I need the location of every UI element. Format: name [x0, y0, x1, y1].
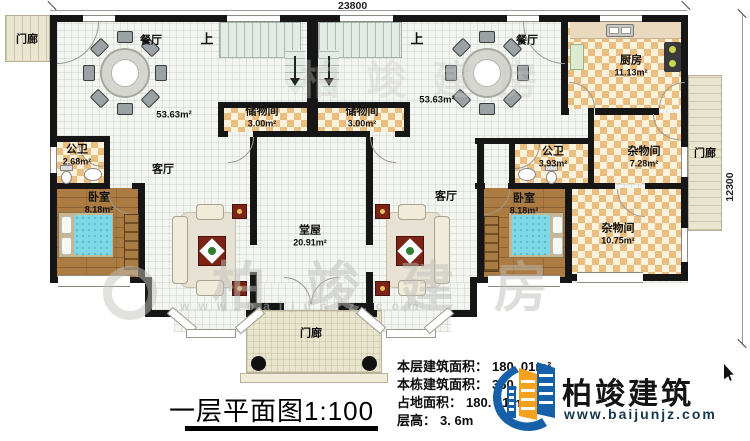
stove	[664, 42, 681, 72]
room-label-living-right: 客厅	[435, 191, 457, 204]
side-table-dot	[237, 286, 242, 291]
round-table-top	[111, 59, 139, 87]
room-label-porch-right: 门廊	[694, 148, 716, 161]
armchair	[398, 204, 426, 220]
toilet-left-bowl	[61, 171, 72, 184]
wall-center	[307, 15, 318, 137]
room-label-bath-left: 公卫 2.68m²	[63, 144, 92, 167]
wall	[218, 131, 228, 137]
sink-left	[84, 168, 102, 181]
room-label-utility-large: 杂物间 10.75m²	[601, 223, 635, 246]
room-name: 堂屋	[293, 225, 327, 238]
bay-window-left	[186, 329, 236, 338]
pillow	[61, 237, 72, 255]
fridge	[570, 44, 584, 70]
room-name: 卧室	[85, 192, 114, 205]
room-label-bedroom-right: 卧室 8.18m²	[510, 193, 539, 216]
chair	[503, 89, 523, 109]
room-area: 20.91m²	[293, 237, 327, 247]
room-label-hall: 堂屋 20.91m²	[293, 225, 327, 248]
wall	[50, 183, 106, 189]
chair	[479, 31, 495, 43]
room-label-storage-right: 储物间 3.00m²	[346, 106, 379, 129]
sheet-title-text: 一层平面图	[169, 396, 304, 426]
dim-top-value: 23800	[338, 0, 367, 12]
pillow	[61, 216, 72, 234]
chair	[155, 65, 167, 81]
wall	[318, 131, 370, 137]
chair	[479, 103, 495, 115]
porch-door-panel	[681, 147, 688, 177]
brand-logo-icon	[487, 356, 563, 440]
room-name: 储物间	[246, 106, 279, 119]
room-label-dining-right: 餐厅	[516, 35, 538, 48]
room-name: 公卫	[63, 144, 92, 157]
porch-front-step	[240, 373, 388, 383]
armchair	[398, 280, 426, 296]
wall	[588, 108, 594, 186]
wall	[645, 183, 688, 189]
window	[600, 15, 642, 22]
wall	[560, 277, 572, 283]
room-label-dining-left: 餐厅	[140, 35, 162, 48]
room-name: 厨房	[614, 55, 647, 68]
room-label-kitchen: 厨房 11.13m²	[614, 55, 647, 78]
room-label-bath-right: 公卫 3.93m²	[539, 146, 568, 169]
area-dining-right: 53.63m²	[419, 96, 454, 107]
stat-label: 本栋建筑面积：	[397, 377, 488, 392]
chair	[117, 31, 133, 43]
window	[577, 272, 643, 283]
room-area: 8.18m²	[510, 205, 539, 215]
title-underline	[185, 426, 378, 431]
wall	[393, 15, 507, 22]
dim-tick	[47, 1, 56, 10]
wall	[565, 183, 572, 277]
wall	[50, 173, 57, 283]
room-area: 2.68m²	[63, 156, 92, 166]
room-area: 3.00m²	[246, 118, 279, 128]
window	[50, 147, 57, 173]
wardrobe-left	[124, 214, 139, 270]
room-name: 卧室	[510, 193, 539, 206]
room-area: 10.75m²	[601, 235, 635, 245]
wall	[253, 131, 307, 137]
room-name: 公卫	[539, 146, 568, 159]
window	[488, 275, 560, 287]
wardrobe-right	[484, 216, 499, 272]
burner	[669, 60, 676, 67]
chair	[517, 65, 529, 81]
sheet-title-scale: 1:100	[304, 396, 374, 426]
dim-right-value: 12300	[724, 160, 736, 214]
bed-left	[58, 212, 114, 258]
side-table-dot	[380, 286, 385, 291]
wall	[138, 183, 145, 277]
window	[507, 15, 539, 22]
porch-column	[362, 356, 377, 371]
wall	[595, 108, 659, 115]
wall	[128, 277, 145, 283]
dim-line-right	[742, 15, 743, 345]
sink-basin	[621, 27, 631, 34]
blanket	[512, 215, 550, 255]
room-label-storage-left: 储物间 3.00m²	[246, 106, 279, 129]
stat-row: 层高：3. 6m	[397, 410, 473, 429]
side-table-dot	[237, 209, 242, 214]
floor-plan-sheet: 柏竣建房 www.baijunjz.com 柏竣建房 门廊 餐厅 53.63m²…	[0, 0, 750, 441]
bed-right	[508, 212, 564, 258]
sofa	[172, 216, 188, 284]
brand-logo-svg	[487, 356, 563, 440]
chair	[83, 65, 95, 81]
window	[58, 275, 130, 287]
sink-right	[518, 168, 536, 181]
room-label-living-left: 客厅	[152, 164, 174, 177]
wall	[681, 15, 688, 147]
room-name: 杂物间	[601, 223, 635, 236]
pillow	[552, 216, 563, 234]
wall	[539, 15, 600, 22]
room-name: 储物间	[346, 106, 379, 119]
wall	[477, 138, 484, 277]
blanket	[74, 215, 112, 255]
stat-value: 3. 6m	[440, 413, 473, 428]
burner	[669, 46, 676, 53]
wall	[395, 131, 410, 137]
wall	[508, 183, 572, 189]
room-label-utility-small: 杂物间 7.28m²	[628, 146, 661, 169]
toilet-right-bowl	[546, 171, 557, 184]
chair	[117, 103, 133, 115]
sheet-title: 一层平面图1:100	[169, 391, 374, 428]
room-area: 3.93m²	[539, 158, 568, 168]
pillow	[552, 237, 563, 255]
window	[83, 15, 115, 22]
stat-label: 占地面积：	[397, 395, 462, 410]
room-area: 8.18m²	[85, 204, 114, 214]
chair	[445, 65, 457, 81]
armchair	[196, 280, 224, 296]
room-name: 杂物间	[628, 146, 661, 159]
wall	[643, 274, 688, 281]
wall	[561, 108, 569, 115]
stat-label: 层高：	[397, 413, 436, 428]
stair-arrow-right	[328, 56, 330, 80]
dim-tick	[681, 1, 690, 10]
chair	[90, 89, 110, 109]
sofa	[434, 216, 450, 284]
porch-door-panel	[681, 228, 688, 262]
stairs-up-right: 上	[410, 33, 423, 48]
wall	[338, 303, 374, 310]
sink-basin	[609, 27, 619, 34]
plant	[406, 247, 414, 255]
room-area: 7.28m²	[628, 158, 661, 168]
room-label-porch-front: 门廊	[300, 328, 322, 341]
wall	[115, 15, 227, 22]
sofa-set-left	[170, 198, 250, 302]
plant	[208, 247, 216, 255]
brand-url: www.baijunjz.com	[564, 406, 717, 422]
stat-label: 本层建筑面积：	[397, 359, 488, 374]
kitchen-sink	[606, 24, 634, 37]
room-area: 11.13m²	[614, 67, 647, 77]
wall	[104, 142, 110, 189]
side-table-dot	[380, 209, 385, 214]
wall	[250, 137, 257, 245]
room-area: 3.00m²	[346, 118, 379, 128]
round-table-top	[473, 59, 501, 87]
stair-arrow-left	[294, 56, 296, 80]
stairs-up-left: 上	[200, 33, 213, 48]
armchair	[196, 204, 224, 220]
chair	[141, 89, 161, 109]
wall	[685, 108, 688, 115]
window	[340, 15, 393, 22]
room-label-porch-top-left: 门廊	[16, 34, 38, 47]
mouse-cursor	[724, 364, 736, 381]
area-dining-left: 53.63m²	[156, 111, 191, 122]
porch-column	[251, 356, 266, 371]
sofa-set-right	[372, 198, 452, 302]
dim-line-top	[50, 10, 687, 11]
room-label-bedroom-left: 卧室 8.18m²	[85, 192, 114, 215]
wall	[50, 15, 57, 147]
window	[227, 15, 280, 22]
